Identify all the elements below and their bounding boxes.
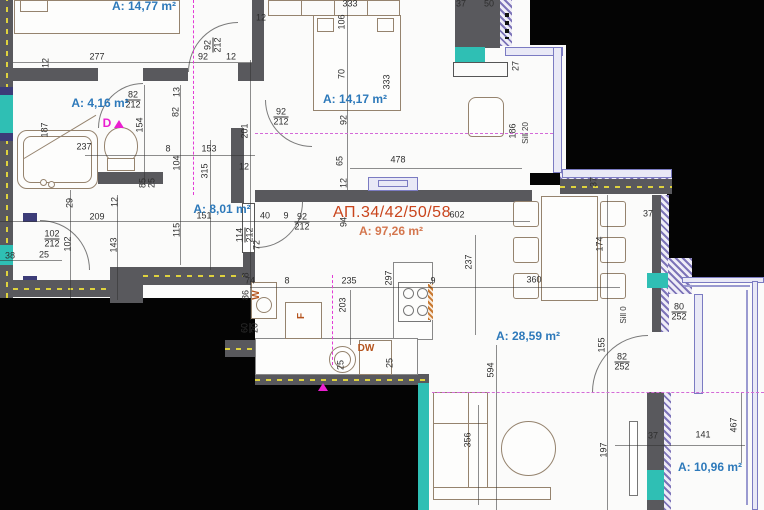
- fridge: [285, 302, 322, 339]
- dimension-label: 25: [39, 251, 49, 260]
- dimension-label: 333: [383, 74, 392, 89]
- dimension-line: [478, 405, 479, 505]
- window-frame: [694, 294, 703, 394]
- dimension-label: 102212: [44, 230, 59, 249]
- dimension-label: 25: [337, 360, 346, 370]
- dimension-label: 80252: [671, 303, 686, 322]
- dimension-line: [607, 195, 608, 510]
- dimension-label: 237: [465, 254, 474, 269]
- room-area-label: A: 8,01 m²: [193, 203, 250, 215]
- appliance-label: F: [297, 313, 307, 319]
- dimension-line: [350, 290, 351, 345]
- dimension-label: 92: [340, 115, 349, 125]
- appliance-label: W: [252, 290, 262, 299]
- dimension-label: 74: [245, 277, 255, 286]
- nightstand: [20, 0, 48, 12]
- floor-plan-canvas: АП.34/42/50/58 A: 97,26 m² 2779212922121…: [0, 0, 764, 510]
- dimension-label: 594: [487, 362, 496, 377]
- dimension-line: [0, 221, 530, 222]
- apartment-number-label: АП.34/42/50/58: [333, 205, 451, 221]
- dimension-label: 186: [509, 123, 518, 138]
- door-marker-triangle: [318, 383, 328, 391]
- wall-segment: [252, 0, 264, 66]
- dimension-label: 37: [456, 0, 466, 9]
- dimension-label: 356: [464, 432, 473, 447]
- faucet-knob: [40, 179, 47, 186]
- dimension-label: 92212: [204, 37, 223, 52]
- dimension-label: 235: [341, 277, 356, 286]
- shaft-dashed-marker: [505, 13, 509, 39]
- dimension-line: [475, 235, 476, 335]
- room-area-label: A: 14,17 m²: [323, 93, 387, 105]
- window-frame: [553, 47, 562, 173]
- wall-segment: [560, 179, 672, 194]
- room-area-label: A: 28,59 m²: [496, 330, 560, 342]
- wall-segment: [225, 340, 255, 357]
- dimension-label: 27: [512, 61, 521, 71]
- dimension-line: [496, 345, 497, 510]
- chair: [513, 201, 539, 227]
- dimension-label: 12: [111, 197, 120, 207]
- sofa: [433, 487, 551, 500]
- dimension-label: 94: [340, 217, 349, 227]
- dimension-label: 209: [89, 213, 104, 222]
- dimension-label: 115: [173, 223, 182, 237]
- dimension-label: 65: [336, 156, 345, 166]
- wall-finish-teal: [647, 470, 665, 500]
- appliance-label: DW: [358, 344, 375, 354]
- dimension-label: 602: [449, 211, 464, 220]
- window-glass-line: [746, 290, 748, 505]
- closet: [268, 0, 400, 16]
- dimension-line: [741, 393, 742, 463]
- dining-table: [541, 196, 598, 301]
- dimension-label: 333: [342, 0, 357, 9]
- dimension-label: 237: [76, 143, 91, 152]
- door-marker-triangle: [114, 120, 124, 128]
- dimension-label: 315: [201, 163, 210, 178]
- dimension-label: 297: [385, 270, 394, 285]
- dimension-label: 12: [340, 178, 349, 188]
- wall-lintel: [453, 62, 508, 77]
- section-line: [332, 275, 333, 365]
- dimension-label: 104: [173, 155, 182, 170]
- section-line: [193, 0, 194, 195]
- dimension-label: 70: [338, 69, 347, 79]
- dimension-label: 6020: [241, 323, 260, 333]
- window-sill-line: [378, 180, 408, 187]
- wall-segment: [110, 267, 143, 303]
- wall-segment: [255, 374, 429, 385]
- dimension-label: 72: [253, 240, 262, 250]
- wall-finish-teal: [0, 95, 13, 133]
- dimension-label: 92: [198, 53, 208, 62]
- wall-finish-teal: [418, 383, 429, 510]
- dimension-label: 153: [201, 145, 216, 154]
- dimension-label: 37: [590, 177, 599, 187]
- dimension-label: 8: [284, 277, 289, 286]
- dimension-label: 25: [148, 178, 157, 188]
- dimension-label: 29: [66, 198, 75, 208]
- wall-segment: [143, 267, 255, 285]
- pillow: [377, 18, 394, 32]
- stove-burner: [417, 305, 428, 316]
- dimension-label: 92212: [273, 108, 288, 127]
- wall-segment: [13, 68, 98, 81]
- wall-insulation-hatch: [664, 392, 671, 510]
- dimension-label: 82252: [614, 353, 629, 372]
- pillow: [317, 18, 334, 32]
- dimension-label: 38: [5, 252, 15, 261]
- dimension-label: 277: [89, 53, 104, 62]
- chair: [600, 201, 626, 227]
- section-line: [432, 392, 764, 393]
- dimension-label: 174: [596, 236, 605, 251]
- dimension-label: 50: [484, 0, 494, 9]
- sofa-line: [434, 423, 487, 424]
- dimension-line: [85, 155, 255, 156]
- dimension-line: [350, 168, 522, 169]
- dimension-label: 106: [338, 14, 347, 29]
- dimension-label: 197: [600, 442, 609, 457]
- dimension-line: [250, 287, 620, 288]
- stove-burner: [403, 305, 414, 316]
- room-area-label: A: 14,77 m²: [112, 0, 176, 12]
- stove: [398, 282, 431, 322]
- window-glass-line: [684, 285, 750, 287]
- dimension-label: 12: [226, 53, 236, 62]
- wall-segment: [143, 68, 188, 81]
- dimension-label: 201: [241, 123, 250, 138]
- dimension-label: 82: [172, 107, 181, 117]
- dimension-label: 12: [42, 58, 51, 68]
- chair: [600, 273, 626, 299]
- dimension-label: 478: [390, 156, 405, 165]
- dimension-label: 37: [643, 210, 653, 219]
- dimension-label: 143: [110, 237, 119, 252]
- window-frame: [562, 169, 672, 178]
- room-area-label: A: 4,16 m²: [71, 97, 128, 109]
- dimension-label: 25: [386, 358, 395, 368]
- door-jamb: [0, 87, 13, 95]
- dimension-label: 467: [730, 417, 739, 432]
- stove-burner: [403, 288, 414, 299]
- stove-burner: [417, 288, 428, 299]
- sofa: [433, 392, 488, 492]
- dimension-label: 86: [242, 290, 251, 300]
- apartment-area-label: A: 97,26 m²: [359, 225, 423, 237]
- dimension-label: 92212: [294, 213, 309, 232]
- sill-height-label: Sill 0: [620, 306, 628, 323]
- toilet-tank: [107, 158, 135, 171]
- dimension-label: 141: [695, 431, 710, 440]
- dimension-label: 40: [260, 212, 270, 221]
- door-marker-label: D: [103, 117, 112, 129]
- dimension-label: 9: [430, 277, 435, 286]
- window-frame: [752, 281, 758, 510]
- wall-insulation-hatch: [668, 258, 692, 294]
- dimension-line: [144, 85, 145, 185]
- dimension-label: 9: [283, 212, 288, 221]
- dimension-line: [615, 445, 745, 446]
- dimension-label: 13: [173, 87, 182, 97]
- dimension-label: 203: [339, 297, 348, 312]
- dimension-label: 12: [239, 163, 249, 172]
- wall-finish-teal: [455, 47, 485, 62]
- dimension-label: 360: [526, 276, 541, 285]
- dimension-label: 102: [64, 236, 73, 251]
- dimension-label: 8: [165, 145, 170, 154]
- dimension-label: 12: [256, 14, 266, 23]
- faucet-knob: [48, 181, 55, 188]
- dimension-label: 187: [41, 122, 50, 137]
- dimension-label: 154: [136, 117, 145, 132]
- chair: [513, 237, 539, 263]
- round-table: [501, 421, 556, 476]
- radiator: [629, 421, 638, 496]
- armchair: [468, 97, 504, 137]
- dimension-label: 155: [598, 337, 607, 352]
- wall-segment: [13, 280, 110, 297]
- stove-side-hatch: [428, 284, 433, 320]
- room-area-label: A: 10,96 m²: [678, 461, 742, 473]
- sill-height-label: Sill 20: [522, 122, 530, 144]
- door-jamb: [0, 133, 13, 141]
- wall-segment: [255, 190, 532, 202]
- dimension-label: 37: [648, 432, 658, 441]
